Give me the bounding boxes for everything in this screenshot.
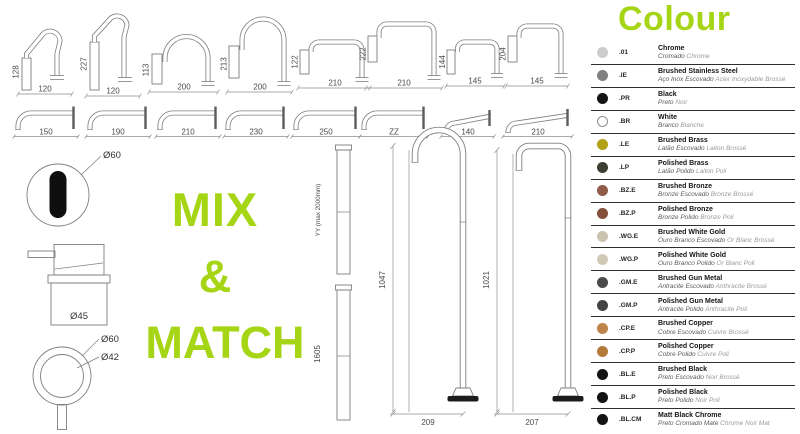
colour-swatch: [597, 300, 608, 311]
colour-name: Polished Black: [658, 388, 720, 397]
height-dim: 144: [438, 55, 447, 69]
colour-swatch: [597, 254, 608, 265]
colour-sub-pt: Bronze Escovado: [658, 191, 709, 198]
spout-drawing-compact-tall: 204 145: [504, 18, 580, 96]
colour-code: .BL.CM: [613, 416, 653, 423]
height-dim: 213: [220, 57, 229, 71]
colour-sub-fr: Chrome Noir Mat: [720, 420, 769, 427]
colour-sub-fr: Acier Inoxydable Brossé: [715, 76, 785, 83]
width-dim: 120: [38, 85, 52, 94]
colour-panel-title: Colour: [618, 0, 731, 39]
colour-subtitle: Branco Blanche: [658, 122, 704, 130]
colour-code: .GM.E: [613, 279, 653, 286]
colour-subtitle: Preto Noir: [658, 99, 687, 107]
colour-code: .BZ.P: [613, 210, 653, 217]
colour-code: .BL.P: [613, 394, 653, 401]
riser-length-label: YY (max 2000mm): [315, 184, 322, 236]
colour-subtitle: Preto Escovado Noir Brossé: [658, 374, 740, 382]
width-dim: 250: [319, 128, 333, 137]
colour-list: .01 Chrome Cromado Chrome .IE Brushed St…: [591, 42, 795, 431]
colour-subtitle: Aço Inox Escovado Acier Inoxydable Bross…: [658, 76, 785, 84]
colour-code: .LE: [613, 141, 653, 148]
colour-swatch: [597, 47, 608, 58]
colour-row: .WG.P Polished White Gold Ouro Branco Po…: [591, 248, 795, 271]
spout-drawing-angled-low: 128 120: [14, 8, 78, 100]
height-dim: 222: [359, 47, 368, 61]
colour-subtitle: Latão Polido Laiton Poli: [658, 168, 726, 176]
colour-subtitle: Bronze Polido Bronze Poli: [658, 214, 734, 222]
colour-sub-pt: Bronze Polido: [658, 214, 698, 221]
colour-swatch: [597, 392, 608, 403]
colour-row: .LE Brushed Brass Latão Escovado Laiton …: [591, 134, 795, 157]
colour-row: .BR White Branco Blanche: [591, 111, 795, 134]
colour-name: Brushed Copper: [658, 319, 749, 328]
colour-code: .BZ.E: [613, 187, 653, 194]
catalog-page: 128 120 227 120 113 200 213 200 122: [0, 0, 800, 434]
colour-name: Brushed Brass: [658, 136, 746, 145]
mix-text: MIX: [148, 186, 282, 233]
colour-swatch: [597, 369, 608, 380]
colour-sub-pt: Cromado: [658, 53, 685, 60]
colour-sub-fr: Noir Poli: [695, 397, 720, 404]
colour-sub-fr: Blanche: [680, 122, 704, 129]
colour-subtitle: Bronze Escovado Bronze Brossé: [658, 191, 753, 199]
colour-row: .BZ.E Brushed Bronze Bronze Escovado Bro…: [591, 180, 795, 203]
colour-code: .IE: [613, 72, 653, 79]
colour-row: .IE Brushed Stainless Steel Aço Inox Esc…: [591, 65, 795, 88]
colour-swatch: [597, 277, 608, 288]
spout-drawing-square-tall: 222 210: [364, 14, 454, 96]
base-plate: [448, 396, 479, 402]
colour-code: .CP.P: [613, 348, 653, 355]
colour-name: Brushed Black: [658, 365, 740, 374]
colour-code: .WG.E: [613, 233, 653, 240]
diameter-label-outer: Ø60: [101, 334, 119, 345]
colour-name: Brushed White Gold: [658, 228, 774, 237]
colour-row: .BZ.P Polished Bronze Bronze Polido Bron…: [591, 203, 795, 226]
width-dim: 210: [328, 79, 342, 88]
colour-sub-fr: Anthracite Brossé: [716, 283, 767, 290]
wall-spout-drawing: 190: [82, 102, 156, 142]
colour-sub-fr: Noir: [675, 99, 687, 106]
ampersand-text: &: [148, 254, 282, 299]
colour-row: .LP Polished Brass Latão Polido Laiton P…: [591, 157, 795, 180]
colour-name: Brushed Stainless Steel: [658, 67, 785, 76]
colour-code: .01: [613, 49, 653, 56]
colour-sub-pt: Antracite Polido: [658, 306, 704, 313]
width-dim: 200: [177, 83, 191, 92]
colour-name: Black: [658, 90, 687, 99]
colour-sub-pt: Cobre Escovado: [658, 329, 706, 336]
colour-sub-pt: Preto Cromado Mate: [658, 420, 718, 427]
colour-code: .BR: [613, 118, 653, 125]
colour-sub-fr: Or Blanc Brossé: [727, 237, 774, 244]
colour-name: Brushed Bronze: [658, 182, 753, 191]
height-dim: 113: [142, 63, 151, 76]
wall-spout-drawing: 210: [152, 102, 226, 142]
colour-row: .GM.P Polished Gun Metal Antracite Polid…: [591, 294, 795, 317]
colour-row: .BL.CM Matt Black Chrome Preto Cromado M…: [591, 409, 795, 431]
colour-subtitle: Cromado Chrome: [658, 53, 710, 61]
spout-drawing-angled-tall: 227 120: [82, 4, 146, 102]
colour-panel: Colour .01 Chrome Cromado Chrome .IE Bru…: [588, 0, 800, 434]
colour-code: .PR: [613, 95, 653, 102]
colour-swatch: [597, 70, 608, 81]
colour-swatch: [597, 139, 608, 150]
colour-sub-pt: Ouro Branco Polido: [658, 260, 715, 267]
wall-spout-drawing: 230: [220, 102, 294, 142]
colour-subtitle: Cobre Polido Cuivre Poli: [658, 351, 729, 359]
colour-sub-fr: Anthracite Poli: [705, 306, 747, 313]
colour-sub-fr: Cuivre Brossé: [708, 329, 749, 336]
mixer-side-view-drawing: Ø45: [24, 238, 134, 328]
wall-spout-drawing: 250: [288, 102, 366, 142]
colour-row: .01 Chrome Cromado Chrome: [591, 42, 795, 65]
colour-swatch: [597, 414, 608, 425]
height-dim: 128: [12, 65, 21, 79]
colour-subtitle: Ouro Branco Polido Or Blanc Poli: [658, 260, 754, 268]
riser-length-label: 1605: [313, 345, 322, 363]
colour-swatch: [597, 208, 608, 219]
colour-name: Polished Brass: [658, 159, 726, 168]
colour-sub-fr: Laiton Brossé: [706, 145, 746, 152]
handle-slot: [50, 171, 67, 218]
wall-spout-drawing: 150: [10, 102, 84, 142]
colour-name: Polished Copper: [658, 342, 729, 351]
colour-sub-pt: Antracite Escovado: [658, 283, 714, 290]
riser-adjustable-drawing: YY (max 2000mm): [312, 140, 360, 280]
colour-sub-pt: Branco: [658, 122, 679, 129]
base-plate: [553, 396, 584, 402]
diameter-label-inner: Ø42: [101, 352, 119, 363]
base-width-dim: 209: [421, 418, 435, 427]
colour-swatch: [597, 93, 608, 104]
colour-name: Chrome: [658, 44, 710, 53]
colour-sub-pt: Latão Polido: [658, 168, 694, 175]
colour-code: .WG.P: [613, 256, 653, 263]
colour-sub-pt: Latão Escovado: [658, 145, 705, 152]
colour-sub-pt: Aço Inox Escovado: [658, 76, 714, 83]
colour-row: .BL.E Brushed Black Preto Escovado Noir …: [591, 363, 795, 386]
colour-subtitle: Cobre Escovado Cuivre Brossé: [658, 329, 749, 337]
colour-row: .CP.E Brushed Copper Cobre Escovado Cuiv…: [591, 317, 795, 340]
colour-subtitle: Ouro Branco Escovado Or Blanc Brossé: [658, 237, 774, 245]
diameter-label: Ø60: [103, 150, 121, 161]
colour-sub-pt: Preto: [658, 99, 674, 106]
height-dim: 1047: [378, 271, 387, 289]
height-dim: 122: [291, 55, 300, 69]
colour-sub-pt: Cobre Polido: [658, 351, 696, 358]
colour-subtitle: Preto Polido Noir Poli: [658, 397, 720, 405]
riser-fixed-drawing: 1605: [312, 282, 360, 426]
colour-code: .LP: [613, 164, 653, 171]
colour-swatch: [597, 323, 608, 334]
colour-sub-pt: Preto Escovado: [658, 374, 704, 381]
base-width-dim: 207: [525, 418, 539, 427]
colour-sub-fr: Cuivre Poli: [697, 351, 728, 358]
handle-top-view-drawing: Ø60: [18, 138, 128, 238]
colour-name: Polished Bronze: [658, 205, 734, 214]
colour-code: .GM.P: [613, 302, 653, 309]
width-dim: 190: [111, 128, 125, 137]
colour-sub-fr: Bronze Brossé: [711, 191, 754, 198]
colour-row: .CP.P Polished Copper Cobre Polido Cuivr…: [591, 340, 795, 363]
colour-swatch: [597, 185, 608, 196]
colour-sub-fr: Or Blanc Poli: [717, 260, 755, 267]
colour-row: .WG.E Brushed White Gold Ouro Branco Esc…: [591, 226, 795, 249]
width-dim: 200: [253, 83, 267, 92]
colour-subtitle: Antracite Polido Anthracite Poli: [658, 306, 747, 314]
colour-sub-fr: Laiton Poli: [696, 168, 726, 175]
height-dim: 1021: [482, 271, 491, 289]
colour-name: White: [658, 113, 704, 122]
height-dim: 204: [499, 47, 508, 61]
colour-name: Brushed Gun Metal: [658, 274, 767, 283]
width-dim: 210: [397, 79, 411, 88]
width-dim: 120: [106, 87, 120, 96]
colour-sub-fr: Bronze Poli: [700, 214, 733, 221]
colour-swatch: [597, 231, 608, 242]
width-dim: 150: [39, 128, 53, 137]
colour-code: .BL.E: [613, 371, 653, 378]
colour-subtitle: Antracite Escovado Anthracite Brossé: [658, 283, 767, 291]
colour-sub-fr: Chrome: [687, 53, 710, 60]
colour-swatch: [597, 162, 608, 173]
colour-subtitle: Preto Cromado Mate Chrome Noir Mat: [658, 420, 770, 428]
width-dim: 145: [530, 77, 544, 86]
colour-sub-pt: Preto Polido: [658, 397, 693, 404]
colour-code: .CP.E: [613, 325, 653, 332]
width-dim: 230: [249, 128, 263, 137]
colour-row: .BL.P Polished Black Preto Polido Noir P…: [591, 386, 795, 409]
colour-sub-fr: Noir Brossé: [706, 374, 740, 381]
colour-name: Matt Black Chrome: [658, 411, 770, 420]
colour-subtitle: Latão Escovado Laiton Brossé: [658, 145, 746, 153]
width-dim: 145: [468, 77, 482, 86]
floor-spout-square-drawing: 1021 207: [480, 120, 594, 432]
match-text: MATCH: [132, 320, 318, 365]
floor-spout-arch-drawing: 1047 209: [376, 120, 488, 432]
colour-swatch: [597, 116, 608, 127]
colour-swatch: [597, 346, 608, 357]
colour-name: Polished Gun Metal: [658, 297, 747, 306]
width-dim: 210: [181, 128, 195, 137]
colour-row: .PR Black Preto Noir: [591, 88, 795, 111]
colour-row: .GM.E Brushed Gun Metal Antracite Escova…: [591, 271, 795, 294]
height-dim: 227: [80, 57, 89, 71]
colour-name: Polished White Gold: [658, 251, 754, 260]
colour-sub-pt: Ouro Branco Escovado: [658, 237, 725, 244]
